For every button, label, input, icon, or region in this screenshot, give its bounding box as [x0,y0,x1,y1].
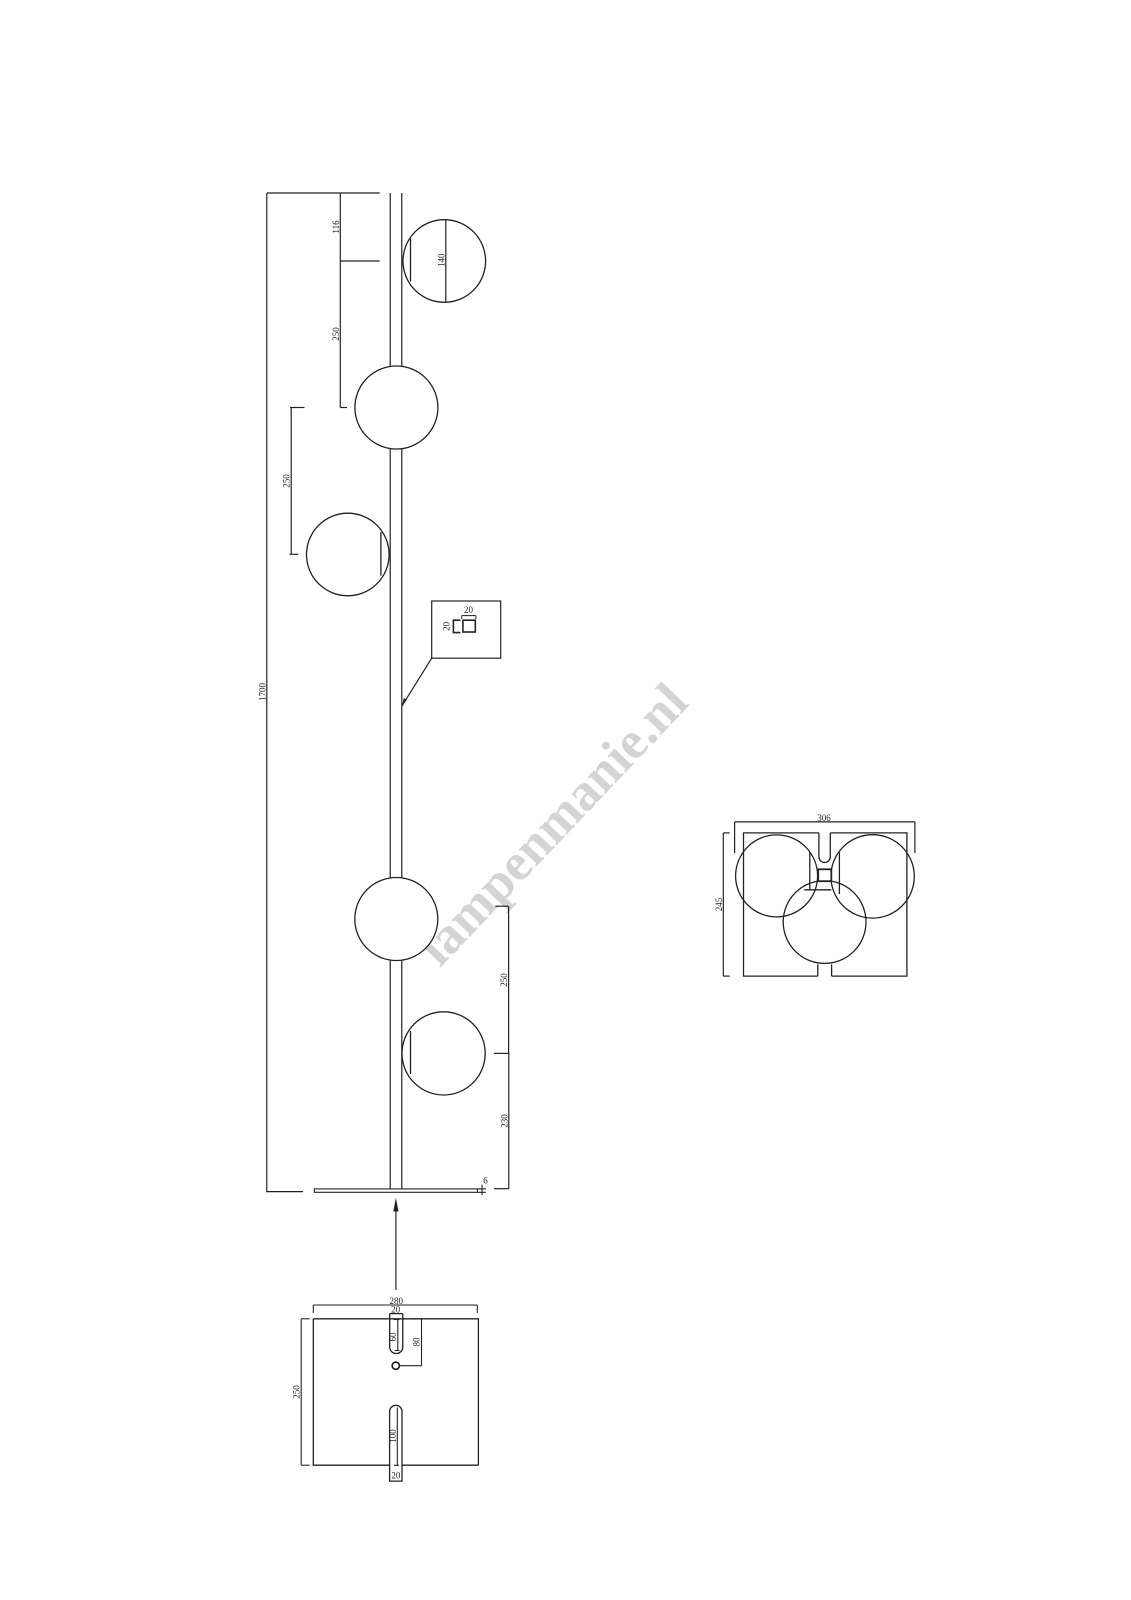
svg-text:20: 20 [391,1471,401,1481]
svg-text:250: 250 [282,474,292,488]
svg-text:140: 140 [436,253,446,267]
svg-text:80: 80 [412,1337,422,1347]
svg-text:116: 116 [331,220,341,234]
svg-text:250: 250 [331,327,341,341]
svg-text:20: 20 [442,621,452,631]
svg-text:250: 250 [292,1385,302,1399]
svg-text:20: 20 [464,605,474,615]
svg-text:60: 60 [388,1332,398,1342]
svg-text:306: 306 [817,813,831,823]
svg-text:250: 250 [499,973,509,987]
svg-text:100: 100 [388,1429,398,1443]
svg-text:1700: 1700 [257,683,267,702]
svg-text:245: 245 [714,897,724,911]
svg-text:230: 230 [499,1114,509,1128]
svg-text:lampenmanie.nl: lampenmanie.nl [407,673,699,977]
svg-text:6: 6 [483,1176,488,1186]
